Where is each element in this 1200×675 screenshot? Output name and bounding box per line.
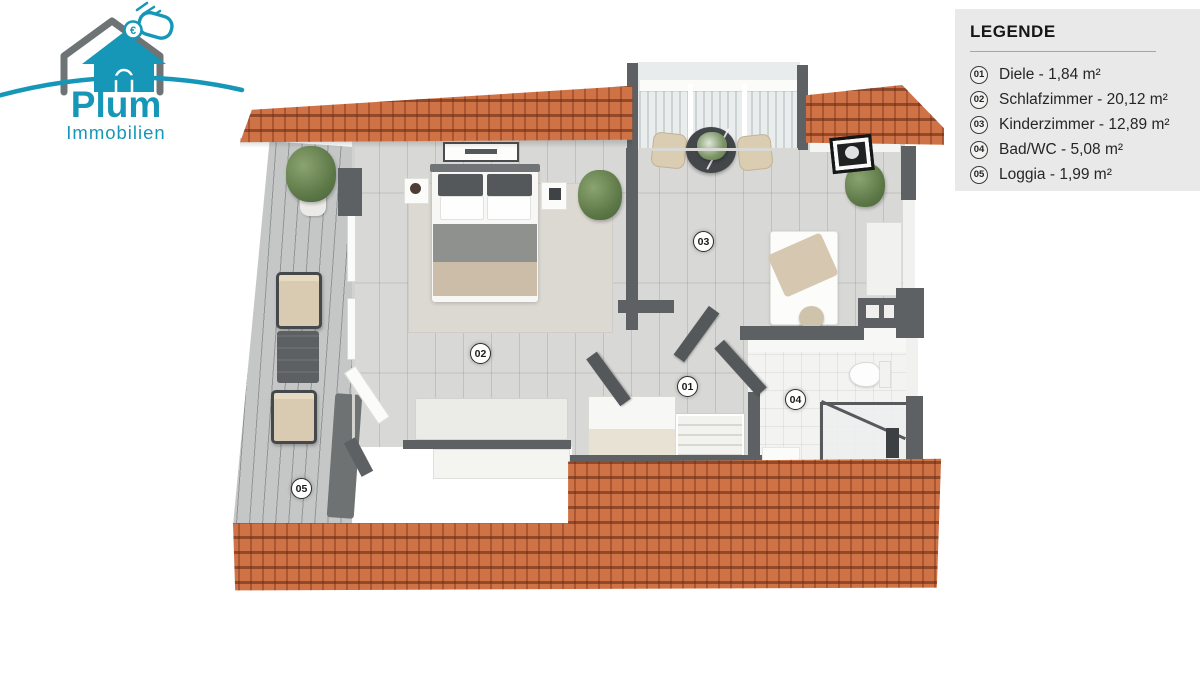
sideboard <box>415 398 568 440</box>
vase <box>410 183 421 194</box>
door-frame <box>347 206 356 282</box>
room-marker: 05 <box>291 478 312 499</box>
bed-pillow <box>487 196 531 220</box>
roof-top-left <box>238 84 634 144</box>
floor-plan: 01 02 03 04 05 <box>0 0 1200 675</box>
wall-segment <box>403 440 571 449</box>
roof-top-right <box>800 82 946 148</box>
wall-segment <box>740 326 864 340</box>
room-marker: 04 <box>785 389 806 410</box>
plant-icon <box>578 170 622 220</box>
wardrobe <box>866 222 902 296</box>
wall-niche <box>884 305 894 318</box>
loggia-table <box>277 331 319 383</box>
loggia-chair <box>271 390 317 444</box>
vent-slot <box>465 149 497 154</box>
wall-niche <box>866 305 879 318</box>
room-marker-number: 05 <box>296 483 308 495</box>
room-marker-number: 01 <box>682 381 694 393</box>
room-marker: 02 <box>470 343 491 364</box>
bed-cushion <box>487 174 532 196</box>
bed-blanket-beige <box>433 262 537 296</box>
wall-segment <box>901 146 916 200</box>
bed-cushion <box>438 174 483 196</box>
bed-pillow <box>440 196 484 220</box>
wall-white-band <box>906 338 918 396</box>
toilet-tank <box>879 361 891 388</box>
wall-white-band <box>903 200 915 288</box>
floorplan-page: € Plum Immobilien LEGENDE 01 Diele - 1,8… <box>0 0 1200 675</box>
room-top-line <box>640 148 798 151</box>
wall-segment <box>748 392 760 462</box>
plant-icon <box>697 132 727 160</box>
shower-column <box>886 428 899 458</box>
window-bench <box>433 449 570 479</box>
bath-mat <box>762 447 800 461</box>
nightstand-item <box>549 188 561 200</box>
room-marker-number: 03 <box>698 236 710 248</box>
balcony-chair <box>736 133 773 171</box>
staircase <box>676 414 744 458</box>
toilet <box>849 362 881 387</box>
room-marker-number: 04 <box>790 394 802 406</box>
wall-segment <box>618 300 674 313</box>
wall-segment <box>896 288 924 338</box>
room-marker: 01 <box>677 376 698 397</box>
door-frame <box>347 298 356 360</box>
loggia-chair <box>276 272 322 329</box>
room-marker-number: 02 <box>475 348 487 360</box>
bed-headboard <box>430 164 540 172</box>
bed-blanket-gray <box>433 224 537 264</box>
plant-icon <box>286 146 336 202</box>
built-in-closet <box>588 396 676 456</box>
wall-segment <box>338 168 362 216</box>
room-marker: 03 <box>693 231 714 252</box>
wall-segment <box>906 396 923 462</box>
